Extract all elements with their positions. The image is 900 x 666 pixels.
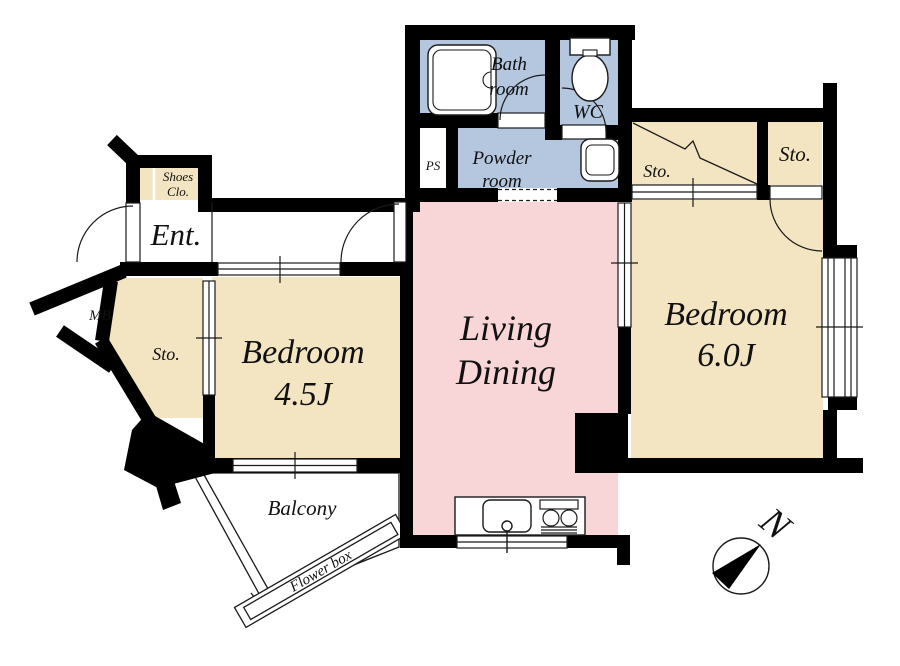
living-label-2: Dining	[455, 352, 556, 392]
bay-window	[816, 258, 863, 397]
wall	[545, 38, 560, 140]
wall	[400, 262, 413, 548]
entrance-label: Ent.	[150, 217, 202, 252]
wall	[557, 188, 632, 202]
kitchen-sink-drain	[502, 521, 512, 531]
bedroom-east-label-1: Bedroom	[664, 296, 787, 333]
compass-north-label: N	[751, 499, 800, 550]
wall	[618, 25, 632, 202]
compass: N	[712, 499, 800, 594]
ps-label: PS	[425, 158, 441, 173]
wall	[606, 125, 618, 140]
wall	[618, 327, 631, 414]
wc-label: WC	[573, 101, 604, 123]
hall-living-door-leaf	[394, 202, 406, 262]
kitchen-window	[457, 536, 567, 548]
bedroom-west-label-2: 4.5J	[274, 376, 334, 413]
wall-diag-entry-stub	[112, 140, 134, 161]
wall	[828, 397, 857, 410]
compass-needle	[712, 544, 761, 589]
storage-east-small-label: Sto.	[779, 142, 811, 166]
toilet	[570, 38, 610, 101]
wall	[340, 262, 413, 276]
entrance-door-leaf	[126, 203, 140, 262]
mb-label: MB	[88, 308, 111, 324]
wall	[617, 535, 630, 565]
powder-label-1: Powder	[471, 148, 532, 169]
entrance-door-arc	[77, 206, 133, 262]
shoes-closet-label-2: Clo.	[167, 184, 189, 199]
wall-stub	[156, 481, 181, 510]
powder-sink	[581, 139, 619, 181]
wall	[757, 185, 770, 200]
wall	[628, 458, 863, 473]
bedroom-west-label-1: Bedroom	[241, 334, 364, 371]
bathroom-door-leaf	[498, 113, 545, 128]
hall-living-door-arc	[341, 204, 399, 262]
powder-label-2: room	[482, 171, 521, 192]
living-label-1: Living	[459, 308, 552, 348]
wall	[823, 410, 837, 458]
wall	[757, 122, 768, 185]
storage-west-label: Sto.	[152, 344, 180, 364]
wall	[446, 128, 458, 190]
wall	[823, 83, 837, 258]
wall	[632, 108, 823, 122]
storage-east-wide-label: Sto.	[643, 161, 671, 181]
wall-pillar	[575, 413, 628, 473]
wall	[405, 25, 420, 202]
wall	[545, 125, 562, 140]
wall	[198, 155, 212, 212]
wall	[406, 210, 413, 262]
floor-plan-drawing: N Bath room WC Powder room PS Shoes Clo.…	[0, 0, 900, 666]
wall	[120, 262, 218, 276]
bathroom-label-1: Bath	[491, 54, 527, 75]
floor-plan-page: N Bath room WC Powder room PS Shoes Clo.…	[0, 0, 900, 666]
shoes-closet-label-1: Shoes	[163, 169, 193, 184]
bedroom-east-label-2: 6.0J	[697, 337, 757, 374]
wall	[828, 245, 857, 258]
storage-east-small-door-leaf	[770, 186, 822, 199]
balcony-label: Balcony	[268, 496, 337, 520]
wc-door-leaf	[562, 125, 606, 139]
bathtub	[428, 45, 496, 115]
bathroom-label-2: room	[489, 79, 528, 100]
